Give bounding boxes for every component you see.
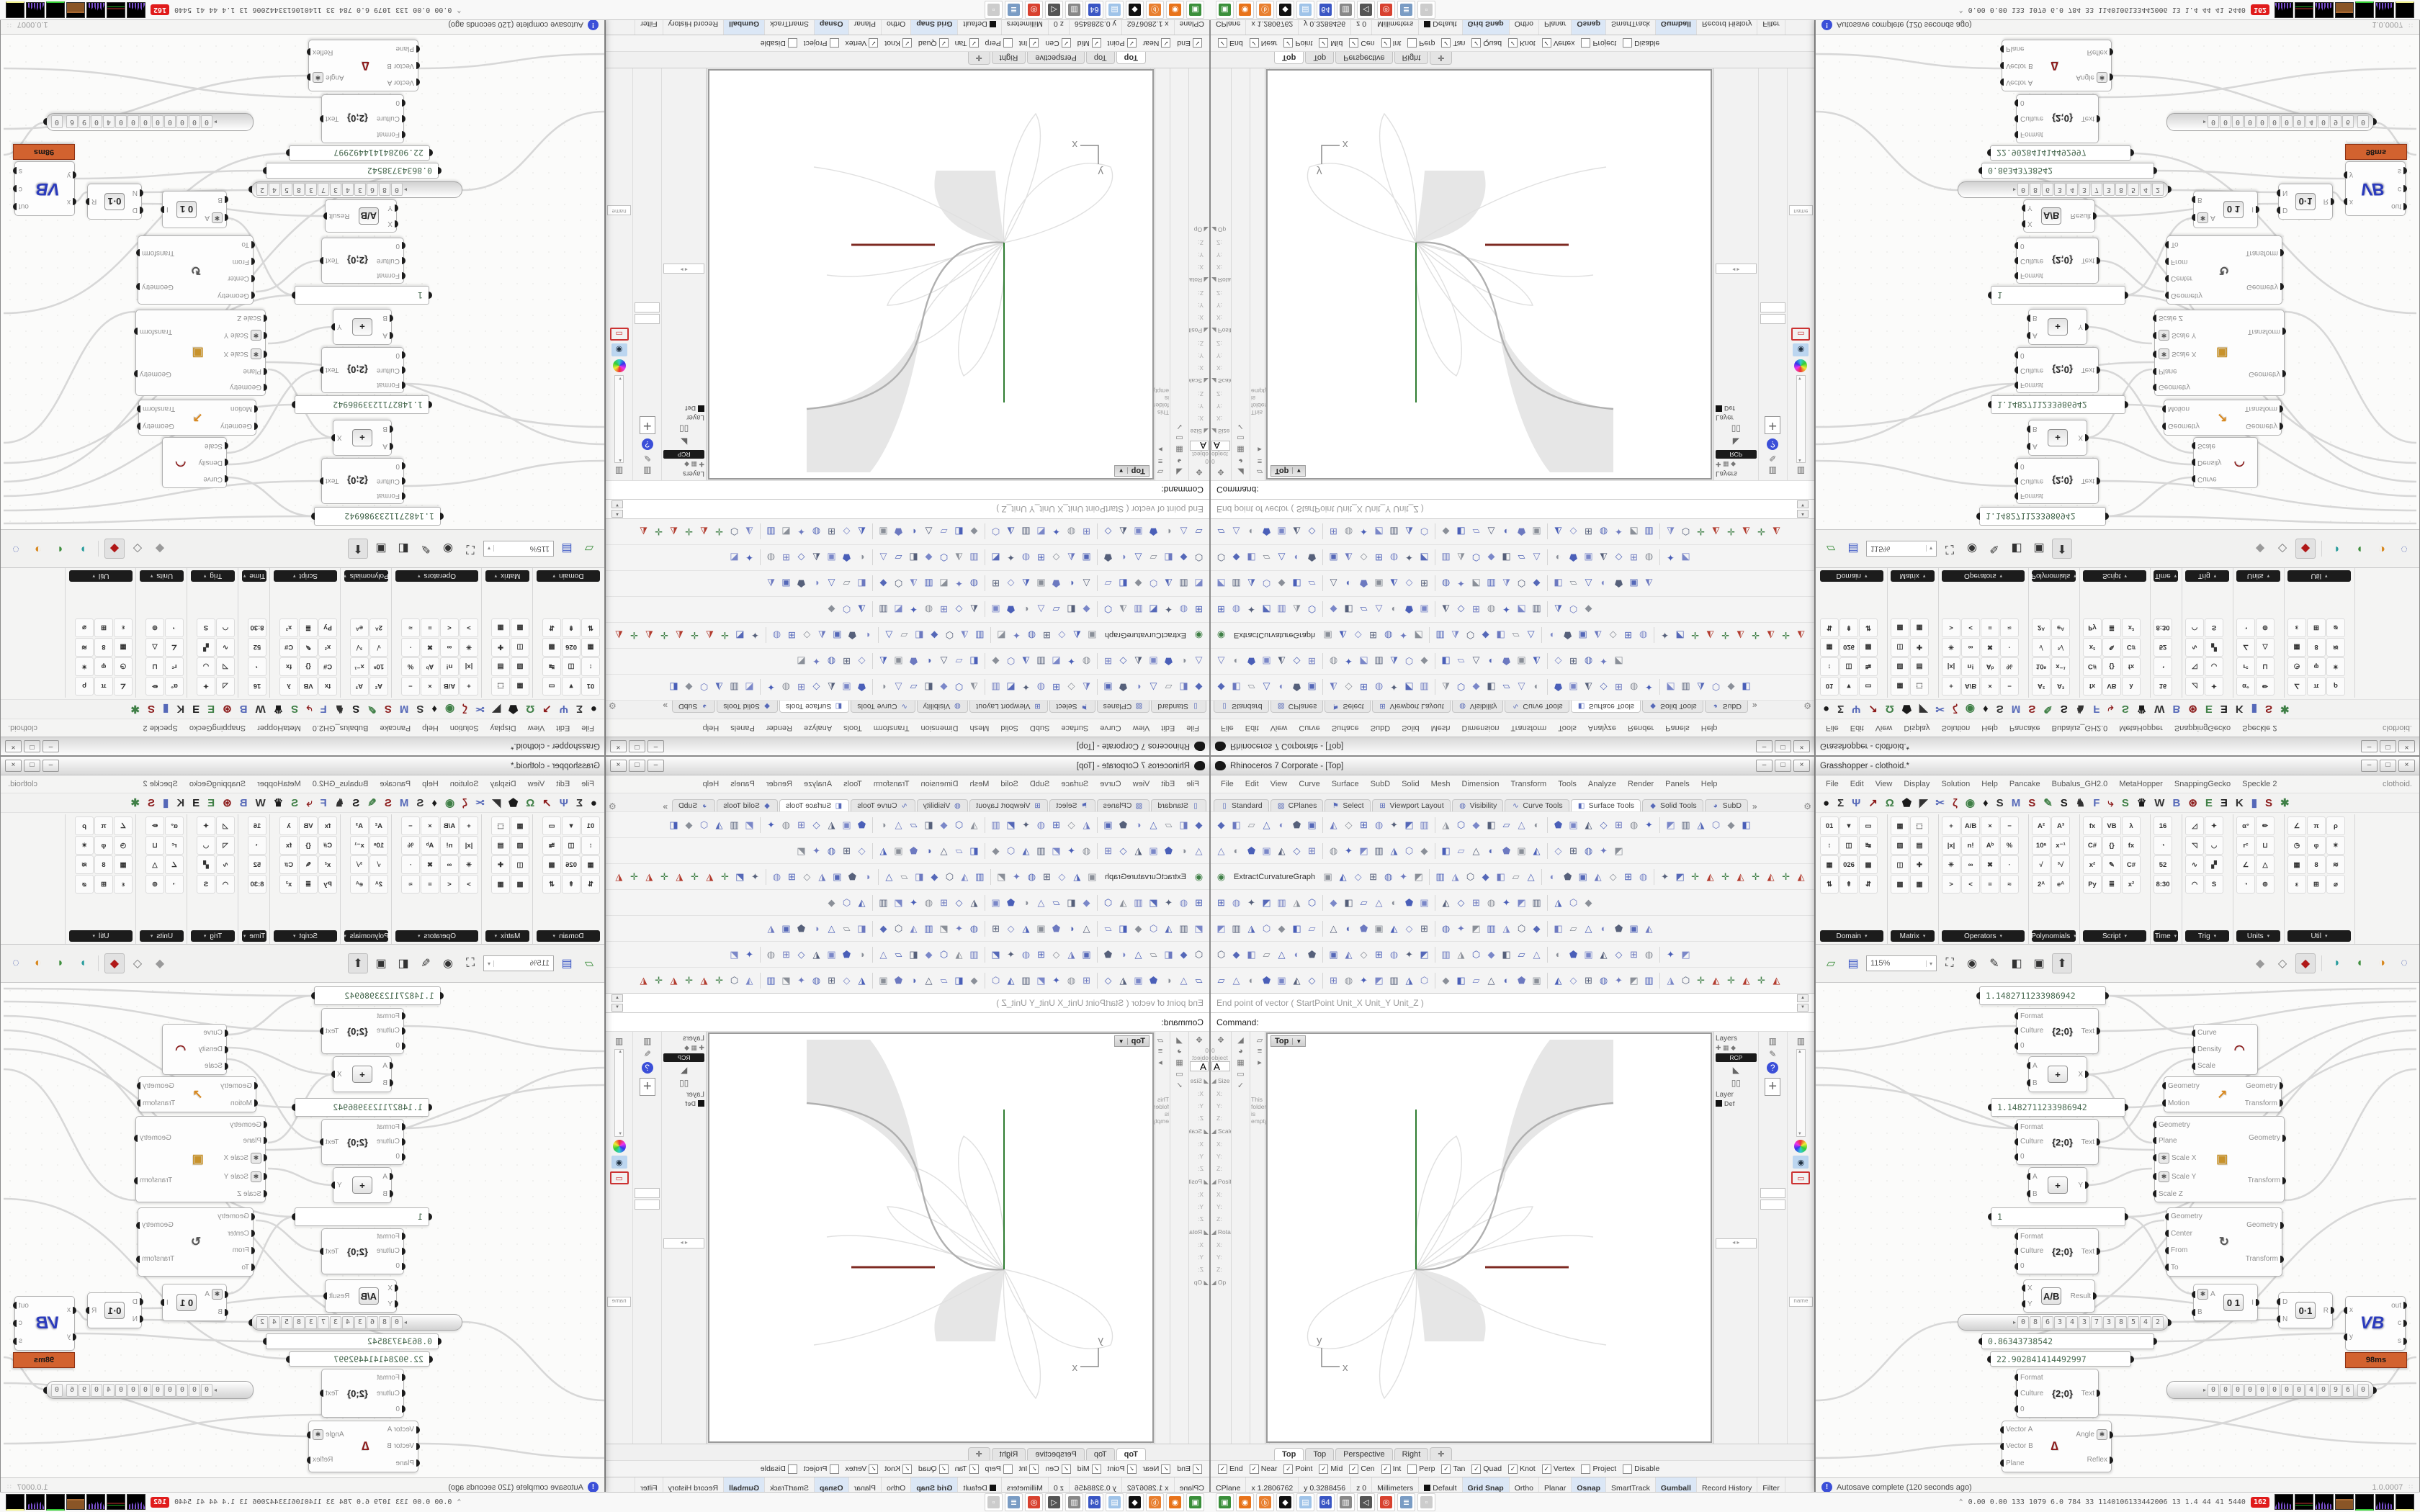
rhino-menu-view[interactable]: View <box>1127 721 1156 734</box>
close-button[interactable]: × <box>5 740 22 752</box>
gh-tab-icon[interactable]: Ω <box>526 797 534 809</box>
toolbar-icon[interactable]: ▱ <box>1147 551 1160 564</box>
osnap-end[interactable]: ✓End <box>1218 39 1243 48</box>
toolbar-icon[interactable]: ◧ <box>1484 680 1498 694</box>
toolbar-icon[interactable]: ◭ <box>1582 818 1595 832</box>
gh-tab-icon[interactable]: ζ <box>462 703 467 716</box>
gh-tab-icon[interactable]: ⤷ <box>2107 703 2113 716</box>
toolbar-icon[interactable]: ⬟ <box>1245 654 1258 668</box>
rhino-menu-surface[interactable]: Surface <box>1326 778 1365 791</box>
gh-panel[interactable]: 1.1482711233986942 <box>314 986 441 1005</box>
toolbar-icon[interactable]: ◍ <box>922 603 936 616</box>
expression-icon[interactable]: ✱ <box>212 212 223 223</box>
gh-component-icon[interactable]: ◿ <box>216 677 235 696</box>
toolbar-icon[interactable]: ◭ <box>764 577 778 590</box>
toolbar-icon[interactable]: ◇ <box>1597 680 1610 694</box>
toolbar-icon[interactable]: ◇ <box>1454 603 1468 616</box>
toolbar-icon[interactable]: ⬟ <box>1101 948 1115 961</box>
toolbar-icon[interactable]: ▣ <box>1372 922 1386 935</box>
toolbar-tab-solid-tools[interactable]: ◆Solid Tools <box>717 799 778 811</box>
gh-tab-icon[interactable]: S <box>291 797 298 809</box>
toolbar-icon[interactable]: ◩ <box>1260 603 1273 616</box>
toolbar-icon[interactable]: ◇ <box>1116 844 1130 858</box>
gh-component-icon[interactable]: > <box>460 618 478 637</box>
toolbar-icon[interactable]: ◩ <box>1372 525 1386 539</box>
toolbar-icon[interactable]: ▱ <box>897 870 911 883</box>
toolbar-icon[interactable]: ⊞ <box>1040 870 1054 883</box>
toolbar-icon[interactable]: ◭ <box>810 948 823 961</box>
gh-component-icon[interactable]: x² <box>279 618 298 637</box>
rhino-menu-solid[interactable]: Solid <box>995 721 1023 734</box>
rhino-menu-tools[interactable]: Tools <box>838 778 868 791</box>
toolbar-icon[interactable]: ▥ <box>967 948 981 961</box>
gh-component-icon[interactable]: rᶜ <box>2236 657 2255 676</box>
toolbar-icon[interactable]: ▥ <box>1387 973 1401 987</box>
gh-component-icon[interactable]: ⊚ <box>145 875 164 894</box>
toolbar-icon[interactable]: ◭ <box>1770 973 1783 987</box>
toolbar-icon[interactable]: ✦ <box>1658 629 1672 642</box>
gh-component-icon[interactable]: fx <box>279 836 298 855</box>
toolbar-icon[interactable]: ⬡ <box>1305 896 1319 909</box>
help-icon[interactable]: ? <box>642 1062 653 1074</box>
toolbar-icon[interactable]: ◮ <box>1162 577 1175 590</box>
gh-tab-icon[interactable]: ✎ <box>367 796 377 809</box>
gh-tab-icon[interactable]: K <box>2236 797 2244 809</box>
toolbar-icon[interactable]: ◐ <box>1530 680 1543 694</box>
toolbar-icon[interactable]: ▱ <box>1147 948 1160 961</box>
toolbar-icon[interactable]: ◇ <box>840 973 853 987</box>
gh-view-tool-icon[interactable]: ⬆ <box>348 953 368 973</box>
gh-component-icon[interactable]: ≋ <box>2326 638 2345 657</box>
gh-component-icon[interactable]: Py <box>318 875 337 894</box>
toolbar-tab-curve-tools[interactable]: ∿Curve Tools <box>851 701 915 713</box>
toolbar-icon[interactable]: ✦ <box>1612 973 1626 987</box>
gh-tab-icon[interactable]: K <box>176 703 184 716</box>
osnap-vertex[interactable]: ✓Vertex <box>1542 39 1575 48</box>
toolbar-icon[interactable]: ◭ <box>1739 973 1753 987</box>
toolbar-icon[interactable]: ◮ <box>967 818 981 832</box>
gh-tab-icon[interactable]: Ǝ <box>192 703 200 716</box>
toolbar-icon[interactable]: ▱ <box>1214 525 1228 539</box>
gh-tab-icon[interactable]: ♛ <box>2137 703 2146 716</box>
toolbar-icon[interactable]: ▣ <box>1627 577 1641 590</box>
gh-component-icon[interactable]: ▦ <box>511 816 529 835</box>
gh-group-label-units[interactable]: Units▾ <box>140 570 184 582</box>
gh-component[interactable]: XYA/BResult <box>2023 199 2095 233</box>
camera-tile-icon[interactable]: ◉ <box>611 343 627 356</box>
toolbar-icon[interactable]: ▥ <box>1275 603 1289 616</box>
toolbar-gear-icon[interactable]: ⚙ <box>1803 801 1811 811</box>
toolbar-icon[interactable]: ◧ <box>1116 922 1130 935</box>
toolbar-icon[interactable]: ◩ <box>1679 948 1693 961</box>
gh-component-icon[interactable]: ⌀ <box>2326 875 2345 894</box>
toolbar-icon[interactable]: ✦ <box>952 577 966 590</box>
osnap-vertex[interactable]: ✓Vertex <box>846 1464 879 1474</box>
gh-component-icon[interactable]: rᶜ <box>165 657 184 676</box>
toolbar-icon[interactable]: ◇ <box>855 844 869 858</box>
gh-component-icon[interactable]: ⌀ <box>75 618 94 637</box>
viewport-title-tab[interactable]: Top ▼ <box>1114 465 1149 477</box>
gh-component-icon[interactable]: ∠ <box>165 638 184 657</box>
toolbar-icon[interactable]: ◆ <box>922 551 936 564</box>
color-wheel-icon[interactable] <box>613 1140 626 1153</box>
toolbar-icon[interactable]: ⬡ <box>943 870 956 883</box>
gh-view-tool-icon[interactable]: ◧ <box>394 539 413 558</box>
toolbar-icon[interactable]: ◭ <box>1734 629 1747 642</box>
rhino-menu-file[interactable]: File <box>1180 778 1205 791</box>
gh-component[interactable]: ✱AB0 1I <box>2193 1284 2258 1321</box>
toolbar-icon[interactable]: ▣ <box>1327 948 1340 961</box>
gh-component-icon[interactable]: A/B <box>1961 816 1980 835</box>
viewport-tab-new[interactable]: ✛ <box>1430 1447 1452 1460</box>
toolbar-icon[interactable]: ✦ <box>794 525 808 539</box>
gh-group-label-matrix[interactable]: Matrix▾ <box>485 570 529 582</box>
expression-icon[interactable]: ✱ <box>2159 1171 2169 1182</box>
help-icon[interactable]: ? <box>1767 1062 1778 1074</box>
toolbar-icon[interactable]: ◆ <box>1214 818 1228 832</box>
panel-scrollbar[interactable] <box>1796 1049 1806 1137</box>
gh-tab-icon[interactable]: M <box>400 797 409 809</box>
gh-view-tool-icon[interactable]: ◉ <box>1963 954 1981 973</box>
gh-component-icon[interactable]: ↕ <box>1820 657 1839 676</box>
gh-number-slider[interactable]: ▸086343738542 <box>251 1314 462 1331</box>
toolbar-icon[interactable]: ◩ <box>1412 629 1425 642</box>
toolbar-icon[interactable]: ◆ <box>922 948 936 961</box>
layers-toolbar-icon[interactable]: ▦ <box>689 461 697 468</box>
gh-hidden-preview-icon[interactable]: ◌ <box>2395 954 2414 973</box>
gh-component-icon[interactable]: |x| <box>460 657 478 676</box>
gh-preview-mode-icon[interactable]: ◇ <box>2273 539 2292 558</box>
toolbar-icon[interactable]: ◩ <box>1214 922 1228 935</box>
gh-tab-icon[interactable]: ↗ <box>542 796 552 809</box>
gh-component-icon[interactable]: 16 <box>248 816 266 835</box>
toolbar-icon[interactable]: ◍ <box>779 818 793 832</box>
gh-component-icon[interactable]: |x| <box>1942 836 1960 855</box>
gh-tab-icon[interactable]: F <box>321 797 327 809</box>
osnap-tan[interactable]: ✓Tan <box>1441 1464 1465 1474</box>
stats-collapse-icon[interactable]: ⌃ <box>1959 1498 1963 1506</box>
toolbar-icon[interactable]: ◩ <box>892 896 905 909</box>
gh-component-icon[interactable]: ↕ <box>1820 836 1839 855</box>
rhino-menu-file[interactable]: File <box>1215 778 1240 791</box>
gh-open-icon[interactable]: ▱ <box>1821 539 1840 558</box>
expression-icon[interactable]: ✱ <box>2097 1429 2107 1440</box>
toolbar-icon[interactable]: ✦ <box>1065 654 1078 668</box>
gh-component[interactable]: AB+Y <box>333 309 392 345</box>
toolbar-icon[interactable]: ◐ <box>1342 577 1355 590</box>
toolbar-icon[interactable]: ⬟ <box>1116 818 1130 832</box>
toolbar-icon[interactable]: ◭ <box>855 973 869 987</box>
gh-component-icon[interactable]: ✦ <box>2205 816 2223 835</box>
gh-group-label-units[interactable]: Units▾ <box>2236 930 2280 942</box>
gh-component-icon[interactable]: Aᵇ <box>1981 836 1999 855</box>
gh-component-icon[interactable]: ⬚ <box>491 677 510 696</box>
gh-group-label-script[interactable]: Script▾ <box>2083 930 2146 942</box>
toolbar-icon[interactable]: ◆ <box>937 818 951 832</box>
gh-component-icon[interactable]: A³ <box>350 677 369 696</box>
viewport-title-tab[interactable]: Top ▼ <box>1114 1035 1149 1047</box>
taskbar-icon-firefox[interactable]: ◉ <box>1166 1 1184 19</box>
toolbar-icon[interactable]: ✦ <box>748 629 762 642</box>
gh-component-icon[interactable]: 8:30 <box>248 618 266 637</box>
gh-menu-snappinggecko[interactable]: SnappingGecko <box>184 778 251 791</box>
toolbar-icon[interactable]: ◧ <box>667 818 681 832</box>
gh-tab-icon[interactable]: ◤ <box>493 796 501 809</box>
gh-component-icon[interactable]: x² <box>2083 855 2102 874</box>
toolbar-icon[interactable]: ◆ <box>682 680 696 694</box>
toolbar-icon[interactable]: ◧ <box>1500 948 1513 961</box>
gh-tab-icon[interactable]: Ψ <box>560 703 568 716</box>
gh-component-icon[interactable]: VB <box>299 816 318 835</box>
gh-component-icon[interactable]: ε <box>114 618 133 637</box>
gh-component-icon[interactable]: A² <box>369 677 388 696</box>
gh-component-icon[interactable]: ▧ <box>1891 657 1909 676</box>
toolbar-icon[interactable]: ✦ <box>1397 870 1410 883</box>
gh-selected-preview-icon[interactable]: ◖ <box>51 954 70 973</box>
toolbar-icon[interactable]: ◧ <box>913 870 926 883</box>
display-mode-icon[interactable]: ◣ <box>1716 1065 1757 1075</box>
toolbar-icon[interactable]: ◍ <box>810 973 823 987</box>
gh-tab-icon[interactable]: ✂ <box>475 703 485 716</box>
toolbar-icon[interactable]: ▱ <box>1500 680 1513 694</box>
toolbar-icon[interactable]: ⬡ <box>1147 577 1160 590</box>
toolbar-icon[interactable]: ⬡ <box>1567 896 1580 909</box>
gh-view-tool-icon[interactable]: ⛶ <box>461 539 480 558</box>
toolbar-tab-surface-tools[interactable]: ◧Surface Tools <box>1571 799 1641 811</box>
toolbar-icon[interactable]: ◐ <box>1290 551 1304 564</box>
gh-component-icon[interactable]: ↕ <box>581 836 600 855</box>
gh-number-slider[interactable]: ▸0000000040960 <box>2166 1381 2374 1399</box>
toolbar-icon[interactable]: ▱ <box>1162 680 1175 694</box>
taskbar-icon-rhino[interactable]: ◆ <box>1126 1 1144 19</box>
toolbar-tab-cplanes[interactable]: ▨CPlanes <box>1270 701 1324 713</box>
toolbar-icon[interactable]: ◧ <box>967 844 981 858</box>
toolbar-icon[interactable]: ⊞ <box>1034 551 1048 564</box>
gh-component-icon[interactable]: x⁻¹ <box>350 657 369 676</box>
toolbar-icon[interactable]: ▣ <box>1131 525 1145 539</box>
toolbar-icon[interactable]: ◧ <box>952 973 966 987</box>
osnap-cen[interactable]: ✓Cen <box>1349 1464 1374 1474</box>
toolbar-icon[interactable]: ◍ <box>1019 948 1033 961</box>
toolbar-tab-subd[interactable]: ◕SubD <box>672 799 715 811</box>
gh-tab-icon[interactable]: ♦ <box>431 797 437 809</box>
monitor-icon[interactable]: ▥ <box>1760 466 1785 476</box>
gh-tab-icon[interactable]: ♞ <box>2076 796 2085 809</box>
taskbar-icon-display[interactable]: ▥ <box>1065 1493 1083 1511</box>
osnap-quad[interactable]: ✓Quad <box>918 39 949 48</box>
gh-menu-bubalus-gh2-0[interactable]: Bubalus_GH2.0 <box>307 721 375 734</box>
rhino-titlebar[interactable]: Rhinoceros 7 Corporate - [Top] –□× <box>1211 757 1814 775</box>
toolbar-icon[interactable]: ◇ <box>1357 948 1371 961</box>
gh-component-icon[interactable]: 026 <box>1839 638 1858 657</box>
toolbar-icon[interactable]: ⬟ <box>1305 948 1319 961</box>
gh-tab-icon[interactable]: ⤷ <box>306 797 312 809</box>
toolbar-icon[interactable]: △ <box>1372 603 1386 616</box>
gh-component-icon[interactable]: Aᵇ <box>421 836 439 855</box>
gh-menu-bubalus-gh2-0[interactable]: Bubalus_GH2.0 <box>2046 721 2114 734</box>
toolbar-icon[interactable]: ◐ <box>1290 948 1304 961</box>
gh-component-icon[interactable]: VB <box>299 677 318 696</box>
gh-component-icon[interactable]: · <box>401 855 420 874</box>
osnap-project[interactable]: Project <box>1581 1464 1616 1474</box>
gh-panel[interactable]: 1 <box>1991 286 2125 305</box>
toolbar-icon[interactable]: ◐ <box>1546 629 1559 642</box>
toolbar-icon[interactable]: ◆ <box>1080 896 1093 909</box>
toolbar-icon[interactable]: ◭ <box>673 629 686 642</box>
toolbar-icon[interactable]: ◐ <box>1275 680 1289 694</box>
gh-component-icon[interactable]: √ <box>2032 855 2051 874</box>
toolbar-icon[interactable]: ⊞ <box>1192 896 1206 909</box>
gh-tab-icon[interactable]: ♞ <box>2076 703 2085 716</box>
toolbar-overflow-chevron[interactable]: » <box>663 801 668 811</box>
toolbar-icon[interactable]: ◭ <box>815 870 829 883</box>
toolbar-icon[interactable]: ✦ <box>1049 525 1063 539</box>
toolbar-icon[interactable]: ⊞ <box>1192 603 1206 616</box>
toolbar-tab-surface-tools[interactable]: ◧Surface Tools <box>1571 701 1641 713</box>
toolbar-icon[interactable]: ◭ <box>1439 603 1453 616</box>
toolbar-icon[interactable]: ✛ <box>1749 629 1762 642</box>
gh-component-icon[interactable]: ◫ <box>511 638 529 657</box>
toolbar-icon[interactable]: ▣ <box>830 629 844 642</box>
osnap-end[interactable]: ✓End <box>1177 39 1202 48</box>
toolbar-icon[interactable]: ⬡ <box>1192 551 1206 564</box>
toolbar-icon[interactable]: ◐ <box>861 870 874 883</box>
gh-component-icon[interactable]: ✚ <box>491 638 510 657</box>
toolbar-icon[interactable]: ✛ <box>1749 870 1762 883</box>
gh-menu-pancake[interactable]: Pancake <box>374 778 416 791</box>
rhino-menu-file[interactable]: File <box>1180 721 1205 734</box>
viewport-dropdown-icon[interactable]: ▼ <box>1119 468 1128 474</box>
help-icon[interactable]: ? <box>642 438 653 450</box>
rhino-menu-dimension[interactable]: Dimension <box>1456 721 1505 734</box>
panel-tab-icon[interactable]: ◕ <box>1232 1047 1249 1056</box>
viewport-dropdown-icon[interactable]: ▼ <box>1119 1038 1128 1045</box>
toolbar-icon[interactable]: ▥ <box>764 525 778 539</box>
gh-component[interactable]: XYA/BResult <box>325 199 397 233</box>
screen-icon[interactable]: ▥ <box>607 1036 631 1046</box>
gh-component[interactable]: XYA/BResult <box>2023 1279 2095 1313</box>
toolbar-icon[interactable]: ⬟ <box>1612 922 1626 935</box>
gh-component-icon[interactable]: 10ᵃ <box>369 657 388 676</box>
gh-tab-icon[interactable]: S <box>2061 703 2068 716</box>
gh-component-icon[interactable]: √ <box>369 638 388 657</box>
toolbar-button-label[interactable]: ExtractCurvatureGraph <box>1234 873 1315 881</box>
gh-panel[interactable]: 1.1482711233986942 <box>314 507 441 526</box>
toolbar-icon[interactable]: ◆ <box>1582 603 1595 616</box>
toolbar-icon[interactable]: ⊞ <box>1372 948 1386 961</box>
gh-menu-metahopper[interactable]: MetaHopper <box>2113 721 2169 734</box>
maximize-button[interactable]: □ <box>1775 740 1791 752</box>
toolbar-icon[interactable]: ◭ <box>697 973 711 987</box>
gh-component-icon[interactable]: ³√ <box>350 638 369 657</box>
gh-component-icon[interactable]: ⇅ <box>1820 875 1839 894</box>
gh-menu-view[interactable]: View <box>522 778 551 791</box>
gh-component-icon[interactable]: × <box>421 677 439 696</box>
toolbar-icon[interactable]: ⬡ <box>1214 551 1228 564</box>
toolbar-icon[interactable]: ◍ <box>770 870 784 883</box>
toolbar-icon[interactable]: ◭ <box>612 629 626 642</box>
gh-component-icon[interactable]: √ <box>2032 638 2051 657</box>
gh-component-icon[interactable]: 52 <box>248 855 266 874</box>
gh-menu-speckle-2[interactable]: Speckle 2 <box>2236 721 2282 734</box>
toolbar-icon[interactable]: ◧ <box>952 525 966 539</box>
gh-component-icon[interactable]: ✏ <box>145 816 164 835</box>
gh-component[interactable]: FormatCulture0{2;0}Text <box>2016 1228 2099 1274</box>
gh-tab-icon[interactable]: B <box>2172 703 2180 716</box>
gh-component-icon[interactable]: ▩ <box>1891 875 1909 894</box>
osnap-perp[interactable]: Perp <box>985 1464 1013 1474</box>
gh-component-icon[interactable]: ▦ <box>511 677 529 696</box>
gh-component-icon[interactable]: < <box>1961 875 1980 894</box>
toolbar-icon[interactable]: ◐ <box>1019 603 1033 616</box>
toolbar-icon[interactable]: ⬟ <box>1245 844 1258 858</box>
toolbar-icon[interactable]: ✦ <box>1500 603 1513 616</box>
toolbar-icon[interactable]: ▱ <box>1500 818 1513 832</box>
gh-component-icon[interactable]: n! <box>440 657 459 676</box>
layer-row[interactable]: Def <box>663 405 704 412</box>
gh-component-icon[interactable]: C# <box>318 657 337 676</box>
brush-icon[interactable]: ✎ <box>635 453 660 463</box>
panel-tab-icon[interactable]: ◢ <box>1171 1035 1188 1045</box>
toolbar-icon[interactable]: ◇ <box>840 525 853 539</box>
layer-color-swatch[interactable] <box>1716 405 1722 412</box>
toolbar-icon[interactable]: ◐ <box>810 922 823 935</box>
toolbar-icon[interactable]: ◩ <box>1515 896 1528 909</box>
gh-component-icon[interactable]: ∠ <box>2287 677 2306 696</box>
toolbar-icon[interactable]: ⬡ <box>1567 603 1580 616</box>
toolbar-icon[interactable]: ◭ <box>1703 870 1717 883</box>
toolbar-icon[interactable]: ◩ <box>779 525 793 539</box>
gh-component[interactable]: xyVBoutcs <box>2345 161 2406 216</box>
gh-component-icon[interactable]: ▞ <box>2205 855 2223 874</box>
toolbar-tab-viewport-layout[interactable]: ⊞Viewport Layout <box>1372 701 1451 713</box>
monitor-icon[interactable]: ▥ <box>635 466 660 476</box>
rhino-menu-mesh[interactable]: Mesh <box>1425 721 1456 734</box>
gh-component-icon[interactable]: ▞ <box>2205 638 2223 657</box>
toolbar-icon[interactable]: ◐ <box>922 654 936 668</box>
gh-selected-preview-icon[interactable]: ◖ <box>2350 539 2369 558</box>
toolbar-icon[interactable]: ▱ <box>840 577 853 590</box>
toolbar-tab-cplanes[interactable]: ▨CPlanes <box>1097 701 1150 713</box>
toolbar-icon[interactable]: ◧ <box>1494 870 1507 883</box>
gh-tab-icon[interactable]: Ω <box>1886 703 1894 716</box>
toolbar-icon[interactable]: ⬡ <box>1679 973 1693 987</box>
taskbar-icon-display[interactable]: ▥ <box>1065 1 1083 19</box>
toolbar-icon[interactable]: ✛ <box>658 629 671 642</box>
viewport-tab-top[interactable]: Top <box>1086 52 1115 64</box>
toolbar-icon[interactable]: ◐ <box>1551 948 1565 961</box>
gh-component-icon[interactable]: ⊚ <box>2256 618 2275 637</box>
gh-group-label-time[interactable]: Time▾ <box>2154 570 2178 582</box>
rhino-menu-surface[interactable]: Surface <box>1326 721 1365 734</box>
toolbar-icon[interactable]: ◮ <box>1664 525 1677 539</box>
gh-zoom-select[interactable]: 115%▾ <box>483 955 554 971</box>
toolbar-icon[interactable]: ◮ <box>1116 896 1130 909</box>
gh-component-icon[interactable]: 01 <box>1820 677 1839 696</box>
toolbar-tab-viewport-layout[interactable]: ⊞Viewport Layout <box>969 701 1048 713</box>
gh-component-icon[interactable]: A³ <box>350 816 369 835</box>
gh-group-label-time[interactable]: Time▾ <box>242 570 266 582</box>
toolbar-icon[interactable]: ◆ <box>1131 577 1145 590</box>
gh-component-icon[interactable]: x⁻¹ <box>2051 836 2070 855</box>
gh-component-icon[interactable]: A/B <box>440 816 459 835</box>
rhino-menu-edit[interactable]: Edit <box>1240 778 1265 791</box>
toolbar-icon[interactable]: ◇ <box>952 896 966 909</box>
gh-component-icon[interactable]: ∠ <box>114 816 133 835</box>
toolbar-icon[interactable]: △ <box>1080 922 1093 935</box>
toolbar-icon[interactable]: ✦ <box>1658 870 1672 883</box>
gh-component[interactable]: AB+X <box>333 420 392 456</box>
